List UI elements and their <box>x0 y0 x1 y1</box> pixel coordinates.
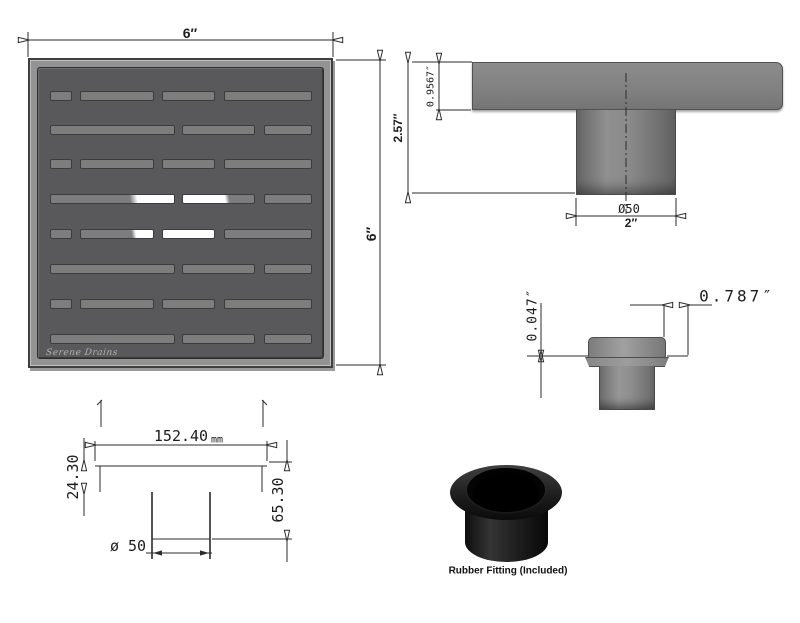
drain-dimension-drawing: Serene Drains <box>0 0 800 623</box>
grate-slot <box>50 125 175 135</box>
dim-label-detail-offset: 0.787″ <box>699 287 775 306</box>
grate-slot <box>264 194 312 204</box>
grate-slot <box>162 229 215 239</box>
dim-label-grate-width: 6″ <box>183 25 198 41</box>
grate-slot <box>50 264 175 274</box>
dim-grate-width <box>28 32 333 57</box>
dim-label-section-plate: 0.9567″ <box>426 65 437 107</box>
dim-label-section-total: 2.57″ <box>391 113 405 142</box>
dim-label-section-width: 2″ <box>625 216 637 230</box>
grate-slot <box>162 159 215 169</box>
grate-slot <box>50 159 72 169</box>
grate-slot <box>182 334 255 344</box>
grate-slot <box>50 91 72 101</box>
grate-slot <box>80 299 154 309</box>
dim-label-profile-total: 65.30 <box>269 477 287 522</box>
dim-profile-pipe-diameter <box>146 550 212 555</box>
grate-top-view: Serene Drains <box>28 58 333 368</box>
grate-slot <box>224 229 312 239</box>
profile-flange-outline <box>95 462 267 492</box>
brand-logo: Serene Drains <box>45 348 118 358</box>
dim-label-grate-height: 6″ <box>363 227 379 242</box>
grate-slot <box>264 125 312 135</box>
grate-slot <box>182 194 255 204</box>
dim-label-profile-width: 152.40 <box>154 427 208 445</box>
grate-slot <box>264 334 312 344</box>
grate-slot <box>50 229 72 239</box>
grate-slot <box>50 194 175 204</box>
dim-label-section-diameter: Ø50 <box>618 202 640 216</box>
section-outlet-pipe <box>576 110 676 195</box>
grate-slot <box>224 159 312 169</box>
section-plate <box>472 62 783 110</box>
detail-flange <box>588 337 666 358</box>
grate-slot <box>264 264 312 274</box>
fitting-caption: Rubber Fitting (Included) <box>449 566 568 577</box>
dim-label-profile-width-unit: mm <box>211 435 223 446</box>
profile-grate-bar <box>97 400 267 427</box>
dim-section-plate-height <box>436 64 471 110</box>
detail-outlet-pipe <box>599 366 655 410</box>
grate-slot <box>80 91 154 101</box>
dim-label-profile-diameter: ø 50 <box>110 537 146 555</box>
grate-slot <box>80 229 154 239</box>
grate-slot <box>162 299 215 309</box>
grate-slot <box>182 125 255 135</box>
grate-slot <box>50 334 175 344</box>
dim-label-detail-lip: 0.047″ <box>526 289 541 342</box>
grate-slot <box>80 159 154 169</box>
grate-slot <box>224 299 312 309</box>
grate-slot <box>182 264 255 274</box>
grate-slot <box>162 91 215 101</box>
grate-slot <box>224 91 312 101</box>
dim-grate-height <box>336 60 386 365</box>
dim-label-profile-flange: 24.30 <box>64 454 82 499</box>
grate-panel <box>37 67 324 359</box>
grate-slot <box>50 299 72 309</box>
rubber-fitting-hole <box>467 468 545 512</box>
profile-pipe-outline <box>152 492 210 559</box>
